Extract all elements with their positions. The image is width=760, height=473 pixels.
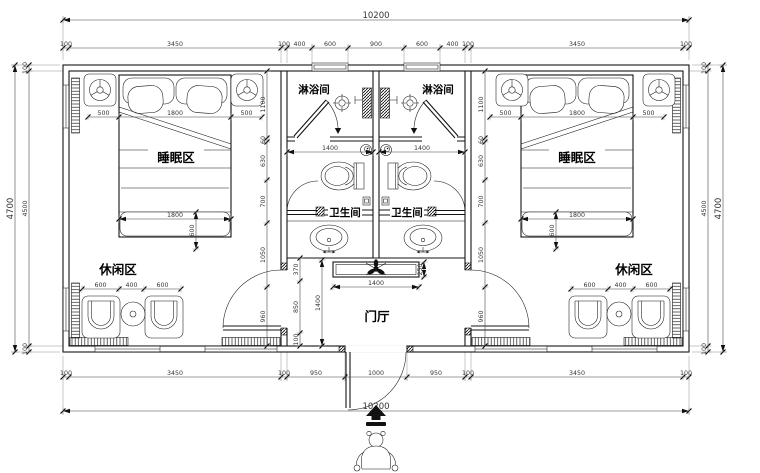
- dimension-label: 960: [478, 310, 485, 322]
- dimension-label: 1050: [478, 247, 485, 263]
- dimension-label: 4700: [6, 198, 16, 220]
- dimension-label: 700: [478, 195, 485, 207]
- dimension-label: 630: [260, 155, 267, 167]
- room-label-wc-right: 卫生间: [391, 206, 423, 219]
- dimension-label: 100: [60, 41, 72, 48]
- dimension-label: 3450: [167, 370, 183, 377]
- shower-door-left: [294, 100, 341, 138]
- dimension-label: 60: [260, 136, 267, 144]
- dimension-label: 3450: [569, 41, 585, 48]
- dimension-label: 600: [94, 282, 106, 289]
- dimension-label: 10200: [362, 11, 389, 21]
- dimension-label: 900: [370, 41, 382, 48]
- dimension-label: 3450: [569, 370, 585, 377]
- dimension-label: 100: [701, 62, 708, 74]
- shower-door-right: [411, 100, 458, 138]
- dimension-label: 1800: [167, 110, 183, 117]
- floor-plan-canvas: 1020010034501004006009006004001003450100…: [0, 0, 760, 473]
- dimension-label: 100: [680, 370, 692, 377]
- armchair: [145, 296, 183, 338]
- dimension-label: 1400: [414, 145, 430, 152]
- sink: [310, 225, 348, 253]
- room-label-foyer: 门厅: [364, 309, 390, 324]
- room-door-left: [223, 263, 287, 335]
- room-door-right: [465, 263, 529, 335]
- room-label-sleep-right: 睡眠区: [558, 150, 596, 165]
- dimension-label: 400: [614, 282, 626, 289]
- dimension-label: 4700: [714, 198, 724, 220]
- dimension-label: 100: [278, 41, 290, 48]
- dimension-label: 1400: [368, 280, 384, 287]
- dimension-label: 950: [430, 370, 442, 377]
- room-label-wc-left: 卫生间: [329, 206, 361, 219]
- dimension-label: 100: [278, 370, 290, 377]
- dimension-label: 370: [293, 263, 300, 275]
- dimension-label: 100: [462, 370, 474, 377]
- dimension-label: 1800: [569, 110, 585, 117]
- dimension-label: 630: [478, 155, 485, 167]
- armchair: [632, 296, 670, 338]
- toilet-area: [321, 145, 431, 206]
- dimension-label: 100: [462, 41, 474, 48]
- dimension-label: 600: [549, 224, 556, 236]
- ceiling-lamp-icon: [84, 74, 116, 106]
- side-table-right: [607, 302, 631, 326]
- dimension-label: 100: [22, 343, 29, 355]
- armchair: [82, 296, 120, 338]
- dimension-label: 1100: [260, 96, 267, 112]
- sink: [404, 225, 442, 253]
- dimension-label: 500: [499, 110, 511, 117]
- room-label-leisure-left: 休闲区: [98, 262, 137, 277]
- dimension-label: 100: [680, 41, 692, 48]
- dimension-label: 1800: [167, 212, 183, 219]
- dimension-label: 100: [293, 333, 300, 345]
- ceiling-lamp-icon: [643, 74, 675, 106]
- dimension-label: 500: [97, 110, 109, 117]
- dimension-label: 500: [240, 110, 252, 117]
- foyer-cabinet: [333, 259, 419, 277]
- floor-drain-icon: [333, 94, 351, 112]
- dimension-label: 100: [60, 370, 72, 377]
- dimension-label: 600: [189, 224, 196, 236]
- bathroom-door-right: [428, 181, 465, 216]
- dimension-label: 400: [293, 41, 305, 48]
- side-table-left: [121, 302, 145, 326]
- dimension-label: 100: [22, 62, 29, 74]
- ceiling-lamp-icon: [231, 74, 263, 106]
- window-shower-left: [312, 63, 348, 71]
- floor-drain-icon: [401, 94, 419, 112]
- room-label-leisure-right: 休闲区: [614, 262, 653, 277]
- floor-plan-drawing: 1020010034501004006009006004001003450100…: [0, 0, 760, 473]
- dimension-label: 1050: [260, 247, 267, 263]
- dimension-label: 1100: [478, 96, 485, 112]
- dimension-label: 700: [260, 195, 267, 207]
- dimension-label: 3450: [167, 41, 183, 48]
- person-entrance-icon: [354, 431, 398, 471]
- dimension-label: 500: [642, 110, 654, 117]
- dimension-label: 100: [701, 343, 708, 355]
- dimension-label: 600: [645, 282, 657, 289]
- dimension-label: 960: [260, 310, 267, 322]
- dimension-label: 950: [310, 370, 322, 377]
- dimension-label: 400: [125, 282, 137, 289]
- ceiling-lamp-icon: [496, 74, 528, 106]
- dimension-label: 1800: [569, 212, 585, 219]
- dimension-label: 1400: [322, 145, 338, 152]
- armchair: [569, 296, 607, 338]
- toilet: [388, 162, 431, 190]
- dimension-label: 4500: [701, 200, 708, 216]
- dimension-label: 1000: [368, 370, 384, 377]
- dimension-label: 400: [446, 41, 458, 48]
- dimension-label: 1400: [315, 295, 322, 311]
- dimension-label: 600: [324, 41, 336, 48]
- room-label-shower-right: 淋浴间: [422, 83, 454, 96]
- bathroom-door-left: [287, 181, 324, 216]
- dimension-label: 600: [416, 41, 428, 48]
- dimension-label: 4500: [22, 200, 29, 216]
- room-label-shower-left: 淋浴间: [298, 83, 330, 96]
- dimension-label: 600: [156, 282, 168, 289]
- dimension-label: 60: [478, 136, 485, 144]
- entrance-door: [339, 346, 413, 410]
- room-label-sleep-left: 睡眠区: [157, 150, 195, 165]
- dimension-label: 600: [583, 282, 595, 289]
- toilet: [321, 162, 364, 190]
- dimension-label: 850: [293, 301, 300, 313]
- dimension-label: 250: [417, 263, 424, 275]
- window-shower-right: [404, 63, 440, 71]
